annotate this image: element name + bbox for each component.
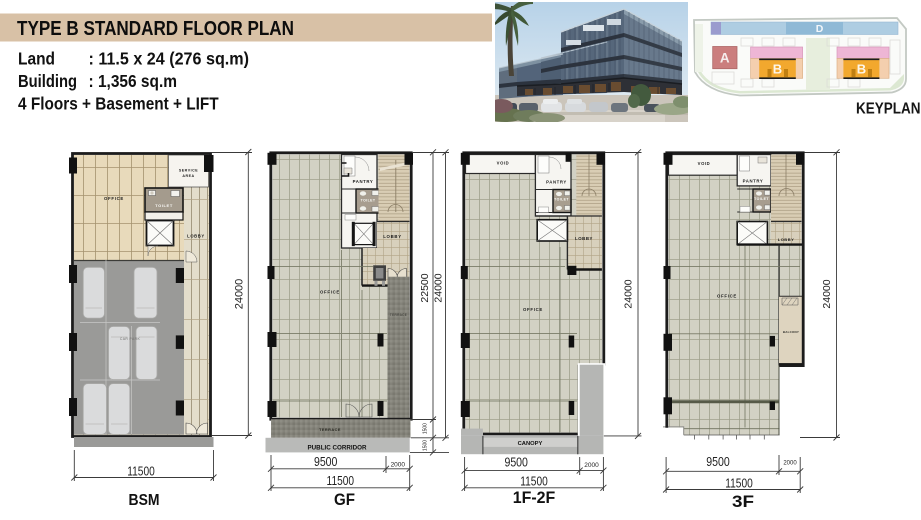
svg-text:22500: 22500 [419,273,431,302]
svg-text:11500: 11500 [520,475,548,489]
svg-text:AREA: AREA [182,174,194,178]
svg-text:SERVICE: SERVICE [179,169,198,173]
svg-text:OFFICE: OFFICE [320,290,340,295]
svg-text:OFFICE: OFFICE [717,294,737,299]
svg-text:TOILET: TOILET [754,197,769,201]
svg-text:: 11.5 x 24 (276 sq.m): : 11.5 x 24 (276 sq.m) [89,49,250,69]
svg-text:24000: 24000 [234,279,246,310]
svg-text:TERRACE: TERRACE [319,428,341,432]
svg-text:1500: 1500 [423,423,429,434]
svg-text:24000: 24000 [623,279,635,308]
svg-text:9500: 9500 [504,456,528,470]
svg-text:CANOPY: CANOPY [518,441,543,447]
svg-text:TYPE B STANDARD FLOOR PLAN: TYPE B STANDARD FLOOR PLAN [17,18,294,40]
svg-text:KEYPLAN: KEYPLAN [856,101,921,118]
svg-text:OFFICE: OFFICE [523,307,543,312]
svg-text:2000: 2000 [391,461,406,468]
svg-text:PANTRY: PANTRY [546,180,567,185]
svg-text:B: B [773,62,782,77]
svg-text:1F-2F: 1F-2F [513,488,556,507]
svg-text:OFFICE: OFFICE [104,196,124,201]
svg-text:3F: 3F [732,492,754,511]
svg-text:1500: 1500 [423,440,429,451]
svg-text:BALCONY: BALCONY [783,330,799,334]
svg-text:24000: 24000 [821,279,833,308]
svg-text:4 Floors + Basement + LIFT: 4 Floors + Basement + LIFT [18,94,219,114]
svg-text:TOILET: TOILET [361,199,376,203]
svg-text:TOILET: TOILET [155,203,173,208]
svg-text:LOBBY: LOBBY [383,234,402,239]
svg-text:LOBBY: LOBBY [575,236,593,241]
svg-text:LOBBY: LOBBY [187,234,205,239]
svg-text:9500: 9500 [314,455,338,469]
svg-text:11500: 11500 [127,465,155,479]
svg-text:: 1,356 sq.m: : 1,356 sq.m [89,71,178,91]
svg-text:PANTRY: PANTRY [743,179,764,184]
svg-text:11500: 11500 [725,477,753,491]
svg-text:BSM: BSM [129,492,160,509]
svg-text:2000: 2000 [783,461,797,467]
svg-text:11500: 11500 [327,474,355,488]
svg-text:VOID: VOID [698,161,711,166]
svg-text:VOID: VOID [497,161,510,166]
svg-text:Building: Building [18,71,77,91]
svg-text:B: B [857,62,866,77]
svg-text:9500: 9500 [706,455,730,469]
svg-text:CAR PARK: CAR PARK [120,337,141,341]
svg-text:TOILET: TOILET [554,198,569,202]
svg-text:24000: 24000 [433,273,445,302]
svg-text:LOBBY: LOBBY [778,237,795,242]
svg-text:D: D [816,23,824,35]
svg-text:TERRACE: TERRACE [390,313,407,317]
svg-text:PUBLIC CORRIDOR: PUBLIC CORRIDOR [308,444,368,451]
svg-text:Land: Land [18,49,55,69]
svg-text:PANTRY: PANTRY [353,179,374,184]
svg-text:GF: GF [334,490,355,509]
svg-text:A: A [720,51,730,66]
svg-text:2000: 2000 [584,462,599,469]
